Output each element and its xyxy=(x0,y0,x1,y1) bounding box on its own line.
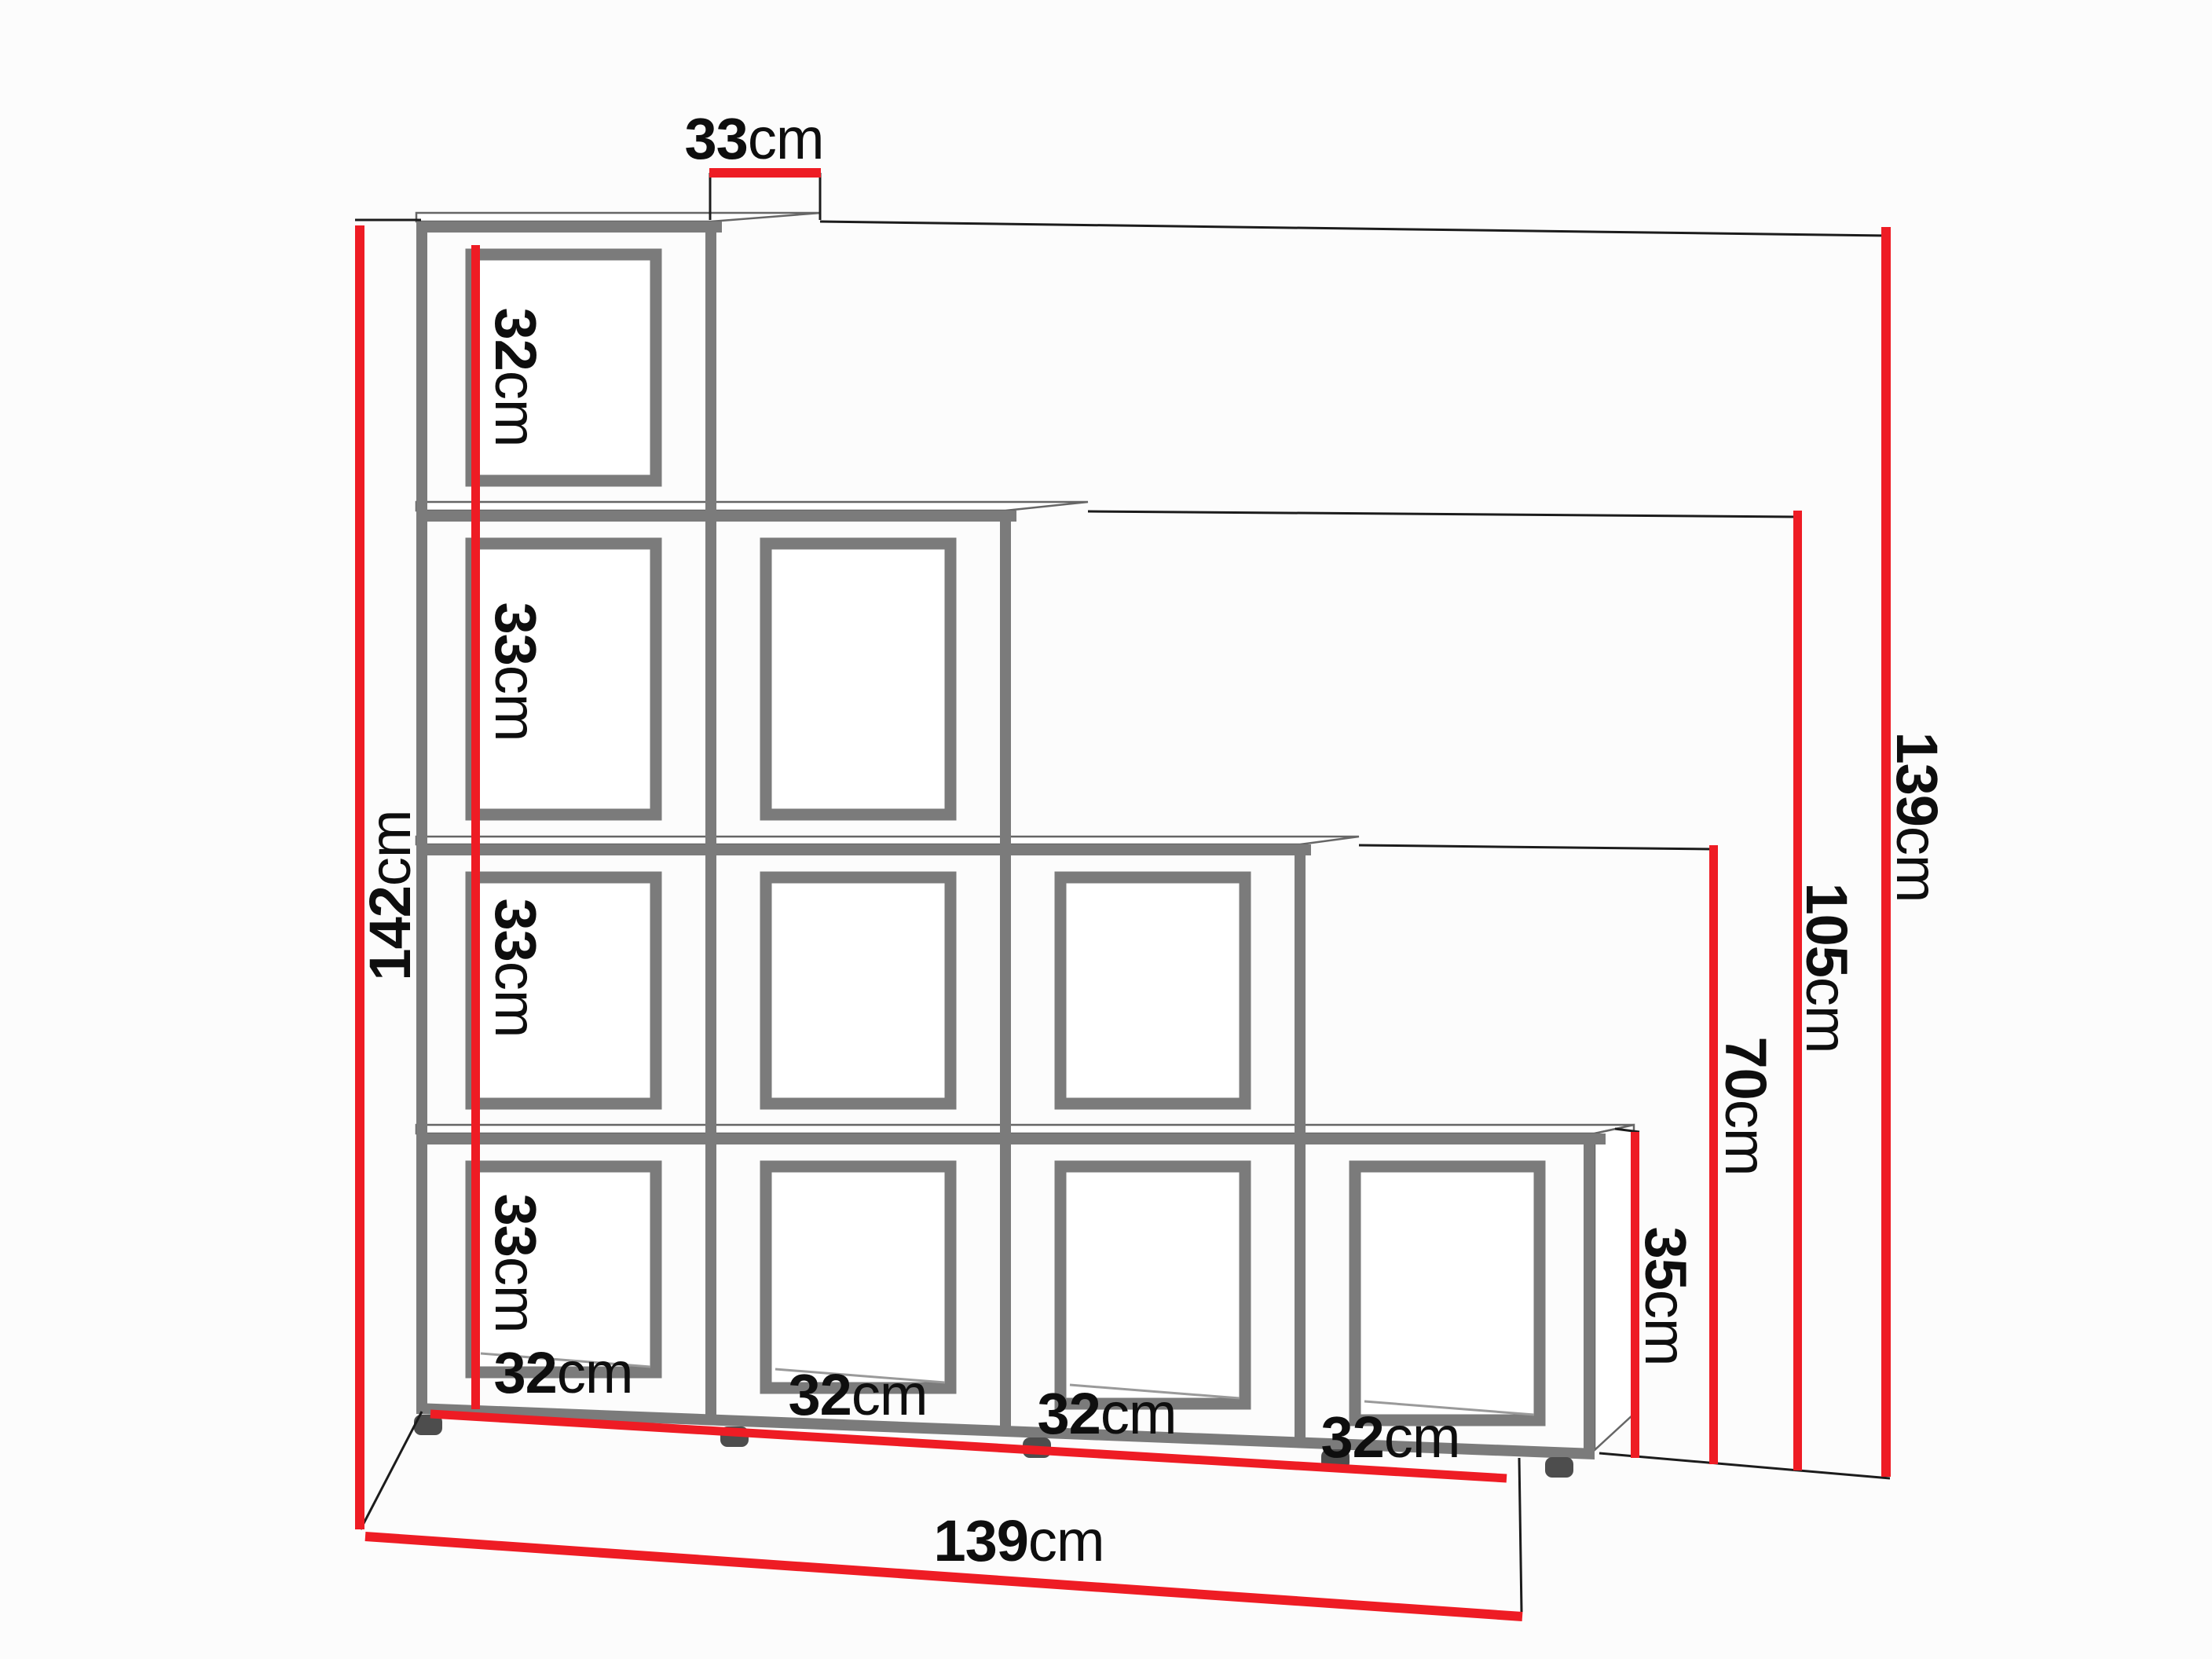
dim-step-139-unit: cm xyxy=(1884,826,1950,903)
dim-bottom-2-value: 32 xyxy=(789,1362,851,1427)
dim-left-height-value: 142 xyxy=(357,886,423,980)
dim-step-105-value: 105 xyxy=(1794,882,1859,976)
dim-step-70-value: 70 xyxy=(1713,1037,1778,1100)
dim-bottom-2-unit: cm xyxy=(851,1362,928,1427)
dim-top-depth-unit: cm xyxy=(748,106,824,171)
dim-cell-height-2: 33cm xyxy=(486,602,544,742)
dim-bottom-4-value: 32 xyxy=(1321,1404,1384,1470)
dim-step-35-unit: cm xyxy=(1633,1290,1698,1366)
dim-top-depth-value: 33 xyxy=(685,106,748,171)
dim-cell-2-value: 33 xyxy=(483,602,548,665)
dim-step-35-value: 35 xyxy=(1633,1227,1698,1290)
dim-cell-3-unit: cm xyxy=(483,961,548,1038)
dim-step-139-value: 139 xyxy=(1884,731,1950,826)
dim-bottom-width-4: 32cm xyxy=(1321,1408,1460,1467)
dim-left-total-height: 142cm xyxy=(361,810,419,980)
dim-cell-4-unit: cm xyxy=(483,1257,548,1333)
dim-step-height-35: 35cm xyxy=(1636,1227,1694,1366)
dim-bottom-1-unit: cm xyxy=(557,1340,633,1405)
dim-bottom-width-1: 32cm xyxy=(494,1344,633,1402)
dim-bottom-4-unit: cm xyxy=(1384,1404,1460,1470)
dim-step-105-unit: cm xyxy=(1794,977,1859,1053)
diagram-canvas: 33cm 142cm 32cm 33cm 33cm 33cm 32cm 32cm… xyxy=(0,0,2212,1659)
dim-cell-height-1: 32cm xyxy=(486,308,544,447)
dim-bottom-width-3: 32cm xyxy=(1038,1385,1177,1443)
dim-bottom-3-value: 32 xyxy=(1038,1381,1101,1446)
dim-left-height-unit: cm xyxy=(357,810,423,886)
dim-cell-1-unit: cm xyxy=(483,371,548,447)
dim-cell-2-unit: cm xyxy=(483,665,548,742)
dim-step-70-unit: cm xyxy=(1713,1100,1778,1176)
dim-total-width: 139cm xyxy=(933,1512,1104,1570)
dim-total-width-value: 139 xyxy=(933,1508,1027,1573)
dim-bottom-width-2: 32cm xyxy=(789,1366,928,1424)
dim-bottom-1-value: 32 xyxy=(494,1340,557,1405)
dim-cell-4-value: 33 xyxy=(483,1194,548,1257)
dim-bottom-3-unit: cm xyxy=(1101,1381,1177,1446)
dim-line-cell-heights xyxy=(471,245,480,1409)
dim-total-width-unit: cm xyxy=(1028,1508,1104,1573)
dim-cell-3-value: 33 xyxy=(483,899,548,961)
dim-cell-height-3: 33cm xyxy=(486,899,544,1038)
dim-step-height-139: 139cm xyxy=(1888,731,1946,902)
dim-step-height-70: 70cm xyxy=(1716,1037,1774,1176)
dim-cell-1-value: 32 xyxy=(483,308,548,371)
dim-cell-height-4: 33cm xyxy=(486,1194,544,1333)
dim-step-height-105: 105cm xyxy=(1797,882,1855,1053)
dim-top-depth: 33cm xyxy=(685,110,824,168)
